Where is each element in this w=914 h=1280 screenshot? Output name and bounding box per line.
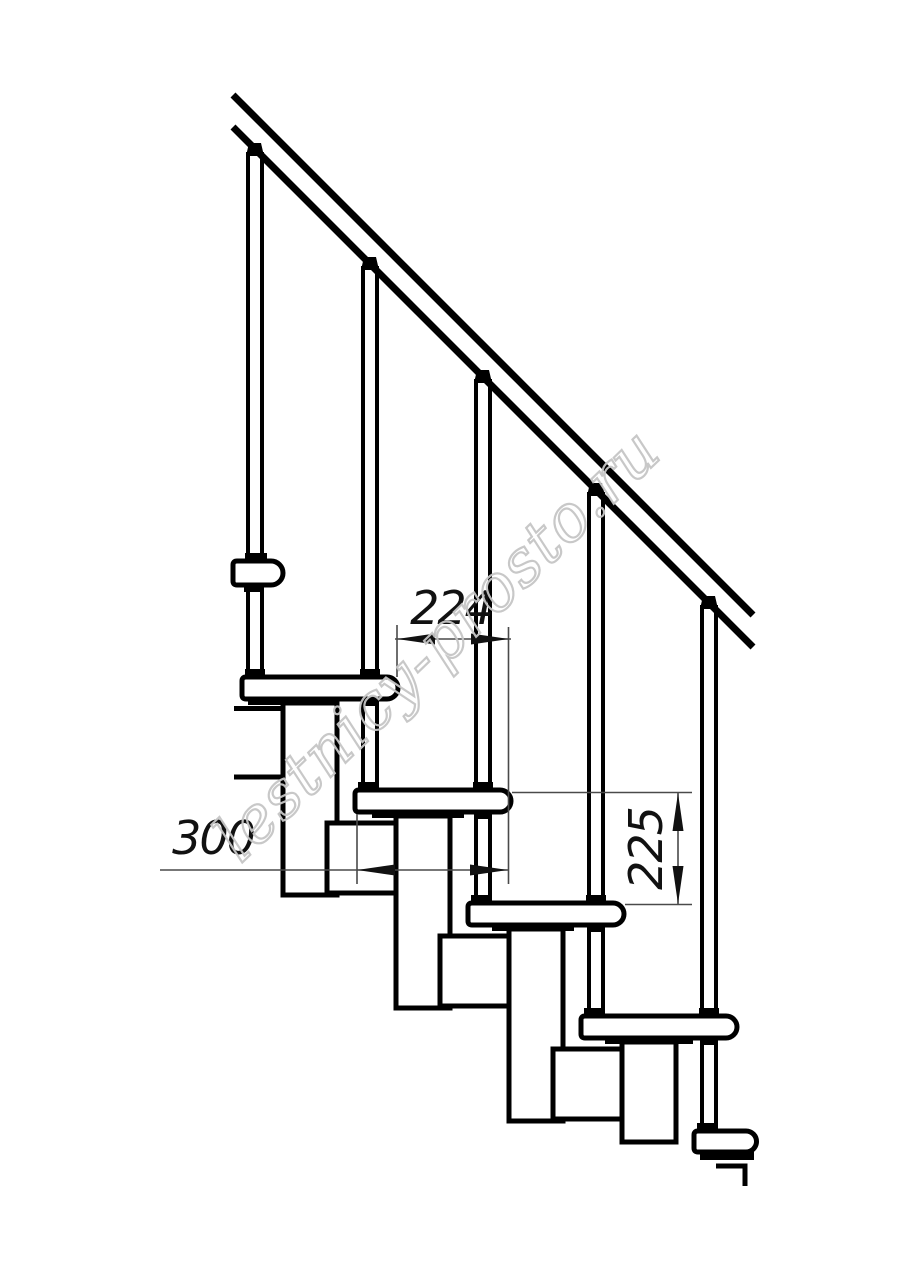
fitting bbox=[586, 895, 606, 903]
tread-5-lower-edge bbox=[716, 1166, 745, 1186]
dimension-label-225: 225 bbox=[619, 808, 673, 890]
rail-connector-3 bbox=[474, 370, 492, 383]
arrow-down bbox=[673, 866, 684, 904]
tread-upper-flight-end bbox=[233, 561, 283, 585]
module-3-offset-box bbox=[553, 1049, 629, 1119]
module-1-offset-box bbox=[327, 823, 403, 893]
rail-connector-5 bbox=[700, 596, 718, 609]
tread-4-mount-strip bbox=[605, 1037, 693, 1044]
fitting bbox=[587, 925, 605, 932]
fitting bbox=[697, 1123, 717, 1131]
fitting bbox=[245, 553, 267, 562]
fitting bbox=[474, 812, 492, 819]
staircase-drawing: 224 300 225 lestnicy-prosto.ru bbox=[0, 0, 914, 1280]
arrow-up bbox=[673, 793, 684, 831]
baluster-1 bbox=[246, 143, 264, 677]
rail-connector-2 bbox=[361, 257, 379, 270]
fitting bbox=[358, 782, 378, 790]
tread-2 bbox=[355, 790, 511, 812]
fitting bbox=[700, 1038, 718, 1045]
tread-5 bbox=[694, 1131, 757, 1152]
tread-3 bbox=[468, 903, 624, 925]
tread-2-mount-strip bbox=[372, 811, 464, 818]
fitting bbox=[699, 1008, 719, 1016]
fitting bbox=[245, 669, 265, 677]
module-4-vertical-box bbox=[622, 1042, 676, 1142]
baluster-4 bbox=[587, 483, 605, 1016]
tread-1-mount-strip bbox=[248, 698, 284, 705]
rail-connector-1 bbox=[246, 143, 264, 156]
baluster-5 bbox=[700, 596, 718, 1131]
module-2-offset-box bbox=[440, 936, 516, 1006]
tread-3-mount-strip bbox=[492, 924, 574, 931]
tread-4 bbox=[581, 1016, 737, 1038]
tread-5-mount-strip bbox=[700, 1151, 754, 1160]
fitting bbox=[471, 895, 491, 903]
handrail-top-line bbox=[233, 95, 753, 615]
fitting bbox=[244, 585, 264, 592]
fitting bbox=[584, 1008, 604, 1016]
fitting bbox=[473, 782, 493, 790]
